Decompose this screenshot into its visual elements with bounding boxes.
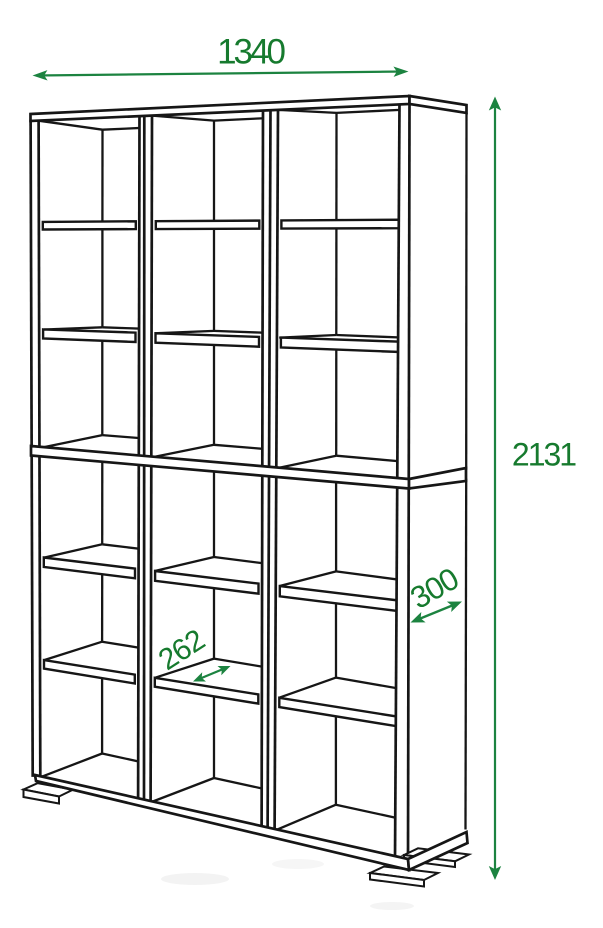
svg-text:2131: 2131 <box>512 437 576 473</box>
svg-text:1340: 1340 <box>217 33 285 72</box>
svg-text:262: 262 <box>153 624 211 677</box>
